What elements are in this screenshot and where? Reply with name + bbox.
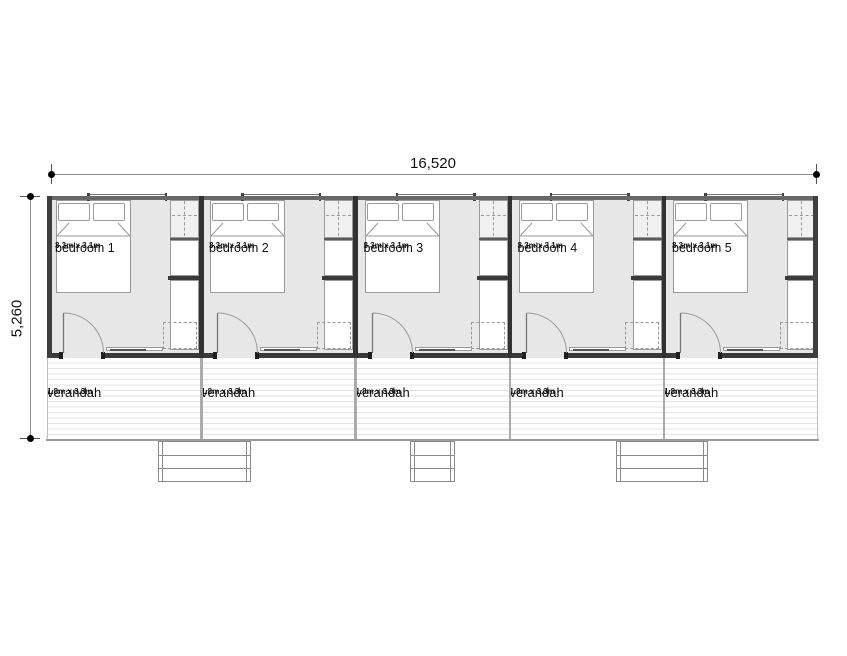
window-sash bbox=[419, 349, 455, 351]
step-tread bbox=[617, 468, 707, 469]
step-tread bbox=[617, 455, 707, 456]
wardrobe-dashed-line bbox=[493, 201, 494, 236]
left-dimension-line bbox=[30, 196, 31, 440]
step-tread bbox=[159, 455, 250, 456]
wardrobe-shelf bbox=[633, 240, 662, 276]
step-tread bbox=[411, 455, 454, 456]
step-stringer bbox=[620, 442, 621, 481]
dimension-endpoint-dot bbox=[48, 171, 55, 178]
wardrobe-dashed-line bbox=[647, 201, 648, 236]
dimension-endpoint-dot bbox=[27, 193, 34, 200]
bedroom-size: 3.3m x 3.1m bbox=[209, 241, 254, 251]
overhead-shelf-dashed bbox=[625, 322, 659, 349]
wardrobe-dashed-line bbox=[801, 201, 802, 236]
party-wall bbox=[199, 196, 204, 358]
overall-width-dimension: 16,520 bbox=[333, 155, 533, 172]
party-wall bbox=[508, 196, 513, 358]
wardrobe-dashed-line bbox=[789, 215, 814, 216]
unit-3: bedroom 3 3.3m x 3.1m verandah 1.8m x 3.… bbox=[356, 196, 510, 440]
overhead-shelf-dashed bbox=[780, 322, 814, 349]
wardrobe-shelf bbox=[170, 240, 199, 276]
door-jamb bbox=[522, 352, 526, 359]
wardrobe-shelf bbox=[787, 240, 816, 276]
step-stringer bbox=[246, 442, 247, 481]
overhead-shelf-dashed bbox=[163, 322, 197, 349]
overall-depth-dimension: 5,260 bbox=[9, 271, 26, 367]
unit-1: bedroom 1 3.3m x 3.1m verandah 1.8m x 3.… bbox=[47, 196, 201, 440]
party-wall bbox=[353, 196, 358, 358]
exterior-wall-right bbox=[813, 196, 818, 358]
wardrobe-dashed-line bbox=[338, 201, 339, 236]
window-sash bbox=[573, 349, 609, 351]
pillow bbox=[93, 203, 125, 221]
unit-5: bedroom 5 3.3m x 3.1m verandah 1.8m x 3.… bbox=[664, 196, 818, 440]
partition-stub-wall bbox=[322, 276, 355, 280]
front-wall bbox=[101, 353, 201, 358]
pillow bbox=[710, 203, 742, 221]
door-jamb bbox=[564, 352, 568, 359]
step-stringer bbox=[450, 442, 451, 481]
front-wall bbox=[564, 353, 664, 358]
window-sash bbox=[110, 349, 146, 351]
bedroom-size: 3.3m x 3.1m bbox=[364, 241, 409, 251]
partition-stub-wall bbox=[631, 276, 664, 280]
verandah-divider bbox=[509, 358, 512, 439]
window-sash bbox=[264, 349, 300, 351]
door-jamb bbox=[101, 352, 105, 359]
front-wall bbox=[255, 353, 355, 358]
party-wall bbox=[662, 196, 667, 358]
door-jamb bbox=[213, 352, 217, 359]
pillow bbox=[367, 203, 399, 221]
bedroom-size: 3.3m x 3.1m bbox=[672, 241, 717, 251]
top-dimension-line bbox=[50, 174, 817, 175]
bedroom-size: 3.3m x 3.1m bbox=[518, 241, 563, 251]
wardrobe-dashed-line bbox=[326, 215, 351, 216]
pillow bbox=[675, 203, 707, 221]
partition-stub-wall bbox=[477, 276, 510, 280]
front-wall bbox=[718, 353, 818, 358]
window-sash bbox=[727, 349, 763, 351]
wardrobe-shelf bbox=[479, 240, 508, 276]
door-jamb bbox=[368, 352, 372, 359]
step-stringer bbox=[414, 442, 415, 481]
steps bbox=[616, 441, 708, 482]
verandah-edge bbox=[47, 358, 48, 439]
unit-4: bedroom 4 3.3m x 3.1m verandah 1.8m x 3.… bbox=[510, 196, 664, 440]
verandah-divider bbox=[663, 358, 666, 439]
pillow bbox=[521, 203, 553, 221]
rear-wall bbox=[47, 196, 818, 200]
pillow bbox=[58, 203, 90, 221]
pillow bbox=[247, 203, 279, 221]
steps bbox=[158, 441, 251, 482]
verandah-size: 1.8m x 3.3m bbox=[47, 386, 92, 397]
front-wall bbox=[410, 353, 510, 358]
steps bbox=[410, 441, 455, 482]
step-tread bbox=[411, 468, 454, 469]
floor-plan: 16,520 5,260 bbox=[0, 0, 847, 656]
dimension-endpoint-dot bbox=[813, 171, 820, 178]
pillow bbox=[402, 203, 434, 221]
wardrobe-dashed-line bbox=[635, 215, 660, 216]
unit-2: bedroom 2 3.3m x 3.1m verandah 1.8m x 3.… bbox=[201, 196, 355, 440]
pillow bbox=[212, 203, 244, 221]
door-jamb bbox=[410, 352, 414, 359]
verandah-size: 1.8m x 3.3m bbox=[201, 386, 246, 397]
wardrobe-dashed-line bbox=[184, 201, 185, 236]
overhead-shelf-dashed bbox=[471, 322, 505, 349]
dimension-endpoint-dot bbox=[27, 435, 34, 442]
door-jamb bbox=[676, 352, 680, 359]
wardrobe-dashed-line bbox=[172, 215, 197, 216]
verandah-divider bbox=[200, 358, 203, 439]
door-jamb bbox=[718, 352, 722, 359]
exterior-wall-left bbox=[47, 196, 52, 358]
overhead-shelf-dashed bbox=[317, 322, 351, 349]
door-jamb bbox=[59, 352, 63, 359]
wardrobe-dashed-line bbox=[481, 215, 506, 216]
pillow bbox=[556, 203, 588, 221]
verandah-size: 1.8m x 3.3m bbox=[510, 386, 555, 397]
verandah-size: 1.8m x 3.3m bbox=[664, 386, 709, 397]
bedroom-size: 3.3m x 3.1m bbox=[55, 241, 100, 251]
verandah-size: 1.8m x 3.3m bbox=[356, 386, 401, 397]
verandah-divider bbox=[354, 358, 357, 439]
partition-stub-wall bbox=[168, 276, 201, 280]
verandah-edge bbox=[817, 358, 818, 439]
wardrobe-shelf bbox=[324, 240, 353, 276]
door-jamb bbox=[255, 352, 259, 359]
step-stringer bbox=[162, 442, 163, 481]
step-stringer bbox=[703, 442, 704, 481]
step-tread bbox=[159, 468, 250, 469]
